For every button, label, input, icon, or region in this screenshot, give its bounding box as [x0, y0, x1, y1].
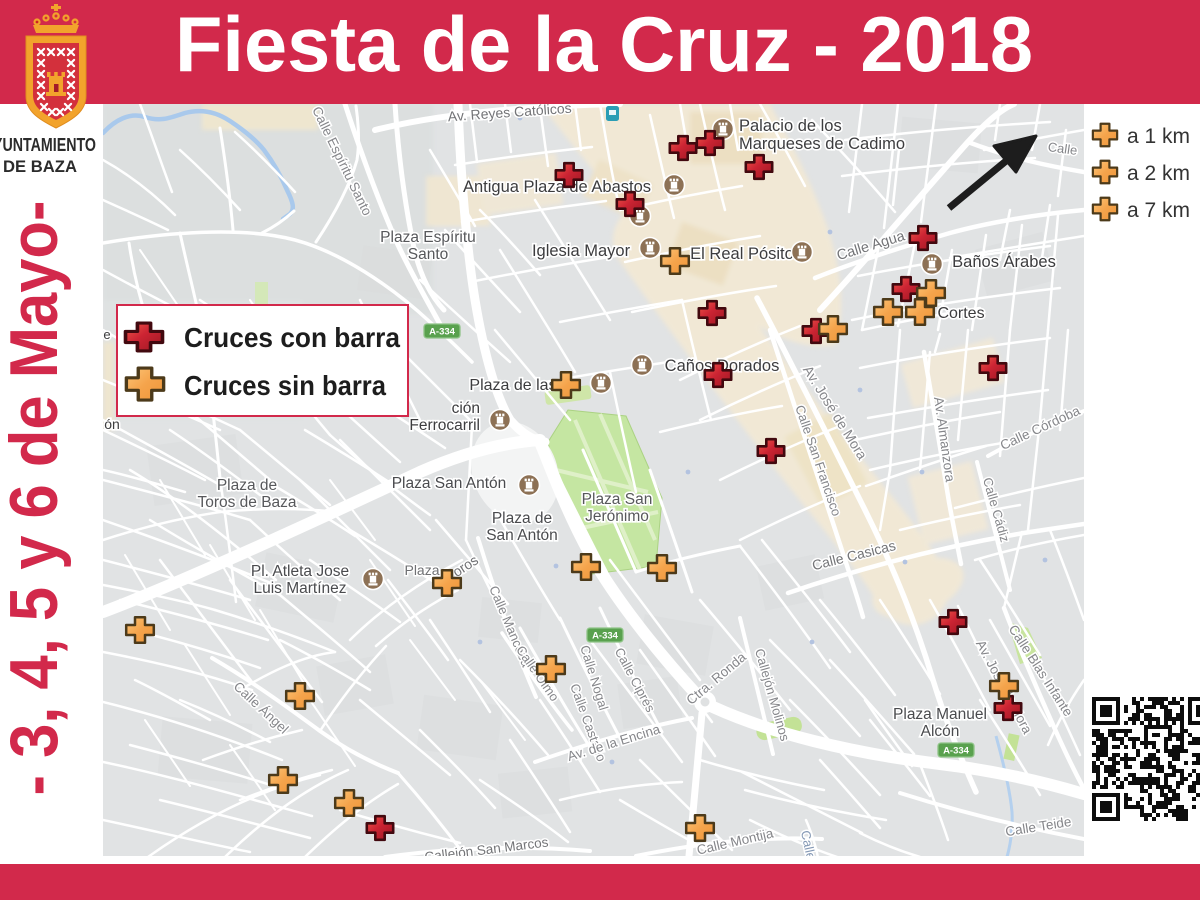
svg-text:Toros de Baza: Toros de Baza — [197, 494, 296, 511]
svg-text:Plaza: Plaza — [404, 562, 439, 578]
svg-text:Pl. Atleta Jose: Pl. Atleta Jose — [251, 563, 349, 580]
svg-text:Plaza de las: Plaza de las — [469, 377, 556, 394]
svg-text:A-334: A-334 — [592, 631, 619, 642]
svg-text:a 2 km: a 2 km — [1127, 162, 1190, 185]
svg-text:Plaza de: Plaza de — [217, 477, 277, 494]
svg-text:A-334: A-334 — [429, 327, 456, 338]
svg-text:Santo: Santo — [408, 246, 449, 263]
svg-text:Cortes: Cortes — [937, 305, 984, 322]
svg-text:AYUNTAMIENTO: AYUNTAMIENTO — [0, 134, 96, 155]
svg-text:Baños Árabes: Baños Árabes — [952, 252, 1056, 271]
svg-text:Cruces sin barra: Cruces sin barra — [184, 370, 386, 401]
svg-text:Marqueses de Cadimo: Marqueses de Cadimo — [739, 135, 905, 153]
svg-text:Plaza Espíritu: Plaza Espíritu — [380, 229, 476, 246]
svg-text:e: e — [103, 327, 110, 342]
svg-text:a 1 km: a 1 km — [1127, 125, 1190, 148]
svg-text:Plaza Manuel: Plaza Manuel — [893, 706, 987, 723]
svg-text:Alcón: Alcón — [921, 723, 960, 740]
svg-text:- 3, 4, 5 y 6 de Mayo-: - 3, 4, 5 y 6 de Mayo- — [0, 201, 72, 796]
svg-text:DE BAZA: DE BAZA — [3, 158, 77, 176]
svg-text:Jerónimo: Jerónimo — [585, 508, 649, 525]
svg-text:Luis Martínez: Luis Martínez — [253, 580, 346, 597]
svg-text:Palacio de los: Palacio de los — [739, 117, 842, 135]
svg-text:a 7 km: a 7 km — [1127, 199, 1190, 222]
svg-text:Fiesta de la Cruz - 2018: Fiesta de la Cruz - 2018 — [175, 0, 1033, 88]
svg-text:Iglesia Mayor: Iglesia Mayor — [532, 242, 631, 260]
svg-text:San Antón: San Antón — [486, 527, 558, 544]
svg-text:ción: ción — [452, 400, 480, 417]
svg-text:Ferrocarril: Ferrocarril — [409, 417, 480, 434]
svg-text:A-334: A-334 — [943, 746, 970, 757]
svg-text:ón: ón — [104, 416, 120, 432]
svg-text:Cruces con barra: Cruces con barra — [184, 322, 400, 353]
svg-text:Plaza San: Plaza San — [582, 491, 653, 508]
svg-text:El Real Pósito: El Real Pósito — [690, 245, 794, 263]
svg-text:Plaza San Antón: Plaza San Antón — [392, 475, 507, 492]
svg-text:Plaza de: Plaza de — [492, 510, 552, 527]
